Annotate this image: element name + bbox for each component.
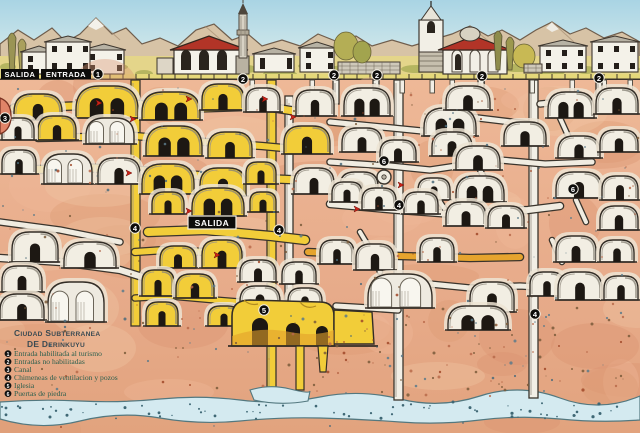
svg-text:SALIDA: SALIDA [195,218,230,228]
svg-text:Puertas de piedra: Puertas de piedra [14,389,67,398]
svg-text:1: 1 [96,70,100,79]
svg-text:2: 2 [332,71,336,80]
svg-text:5: 5 [262,306,266,315]
svg-text:2: 2 [375,71,379,80]
svg-text:SALIDA: SALIDA [5,70,36,79]
svg-text:2: 2 [597,74,601,83]
svg-text:2: 2 [7,360,10,366]
svg-text:ENTRADA: ENTRADA [46,70,86,79]
svg-text:2: 2 [241,75,245,84]
svg-text:3: 3 [7,368,10,374]
svg-text:6: 6 [382,157,386,166]
svg-text:2: 2 [480,72,484,81]
svg-text:1: 1 [7,352,10,358]
svg-text:4: 4 [7,376,10,382]
svg-text:6: 6 [571,185,575,194]
svg-text:3: 3 [3,114,7,123]
svg-text:5: 5 [7,384,10,390]
svg-text:6: 6 [7,392,10,398]
